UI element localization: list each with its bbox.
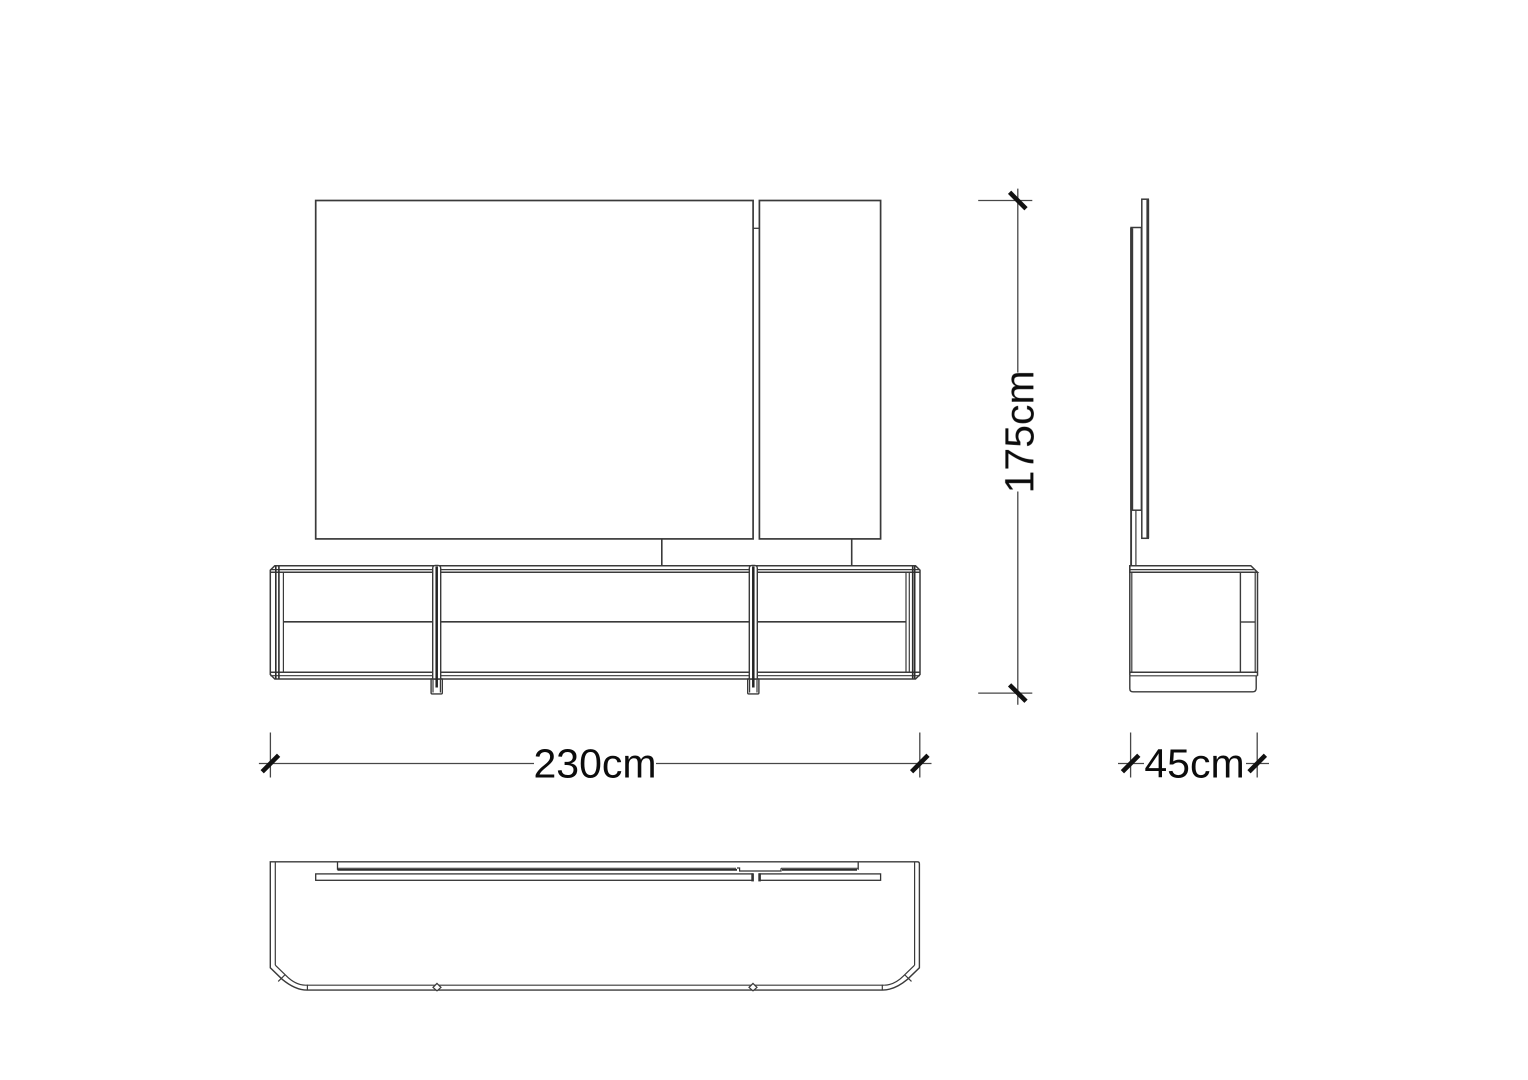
svg-text:230cm: 230cm bbox=[533, 741, 656, 787]
svg-text:175cm: 175cm bbox=[996, 370, 1042, 493]
svg-text:45cm: 45cm bbox=[1144, 741, 1244, 787]
